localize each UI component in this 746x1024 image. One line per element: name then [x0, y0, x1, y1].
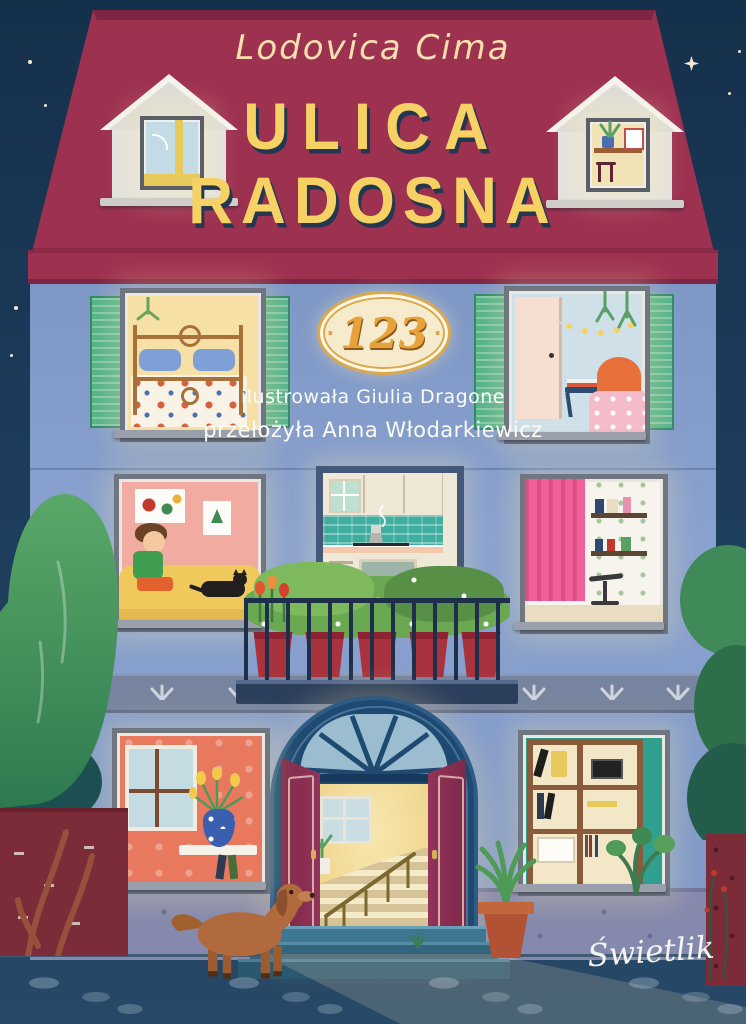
pink-curtain	[525, 479, 585, 601]
bush-right	[676, 540, 746, 840]
shelf	[591, 513, 647, 518]
radio	[591, 759, 623, 779]
tulip-bouquet	[187, 767, 249, 813]
blue-vase	[203, 809, 235, 847]
translator-credit: przełożyła Anna Włodarkiewicz	[0, 418, 746, 442]
book	[589, 835, 592, 857]
tree-branches	[8, 796, 118, 956]
cat-ear	[233, 569, 239, 575]
grass-tuft	[408, 928, 428, 948]
badge-dot: ·	[327, 321, 335, 345]
book	[607, 499, 618, 513]
plant-pot	[621, 537, 631, 551]
leaf-motif-icon	[598, 682, 626, 700]
house-number: 123	[340, 309, 428, 358]
monstera-plant	[606, 812, 676, 896]
book	[623, 497, 631, 513]
book	[595, 539, 603, 551]
dog	[168, 876, 326, 982]
cabinet-line	[403, 475, 405, 513]
hanging-plant	[595, 291, 639, 333]
book	[551, 751, 567, 777]
door-handle	[311, 850, 316, 859]
leaf-motif-icon	[520, 682, 548, 700]
storage-box	[537, 837, 575, 863]
cabinet-line	[363, 475, 365, 513]
shutter-left	[474, 294, 508, 430]
wall-poster	[203, 501, 231, 535]
book	[607, 539, 615, 551]
star	[10, 354, 13, 357]
window-sill	[514, 622, 664, 630]
roof-frieze	[28, 250, 718, 284]
leaf-motif-icon	[148, 682, 176, 700]
book-flat	[587, 801, 617, 807]
wall-poster	[135, 489, 185, 523]
book	[595, 499, 604, 513]
pillow	[139, 349, 181, 371]
tree-print	[211, 509, 223, 523]
balcony	[244, 568, 510, 708]
balcony-railing	[244, 598, 510, 685]
footboard-rail	[133, 377, 243, 381]
title-line-2: RADOSNA	[0, 164, 746, 239]
chair-pole	[603, 581, 607, 603]
pillow	[193, 349, 235, 371]
tree-left	[0, 452, 140, 812]
door-handle	[432, 850, 437, 859]
study-window	[520, 474, 668, 634]
author-name: Lodovica Cima	[0, 28, 746, 68]
steam-icon	[375, 503, 389, 527]
hanging-plant	[133, 297, 163, 321]
agave-leaves	[474, 836, 538, 908]
house-number-badge: · 123 ·	[317, 291, 451, 375]
boy-pants	[137, 577, 173, 591]
cooktop	[353, 543, 409, 546]
terracotta-pot-rim	[478, 902, 534, 914]
shutter-left	[90, 296, 124, 428]
book	[537, 793, 544, 819]
star	[14, 306, 18, 310]
glass-cabinet	[329, 479, 361, 513]
title-line-1: ULICA	[0, 90, 746, 165]
shelf	[591, 551, 647, 556]
illustrator-credit: ilustrowała Giulia Dragone	[0, 386, 746, 408]
door-panel-outline	[438, 775, 464, 941]
book	[585, 835, 588, 857]
door-knob	[549, 353, 554, 358]
book-cover: · 123 · ilustrowała Giulia Dragone przeł…	[0, 0, 746, 1024]
bed-ring	[179, 325, 201, 347]
front-door-right	[428, 758, 466, 954]
book	[595, 835, 598, 857]
badge-dot: ·	[434, 321, 442, 345]
boy-face	[143, 531, 165, 553]
